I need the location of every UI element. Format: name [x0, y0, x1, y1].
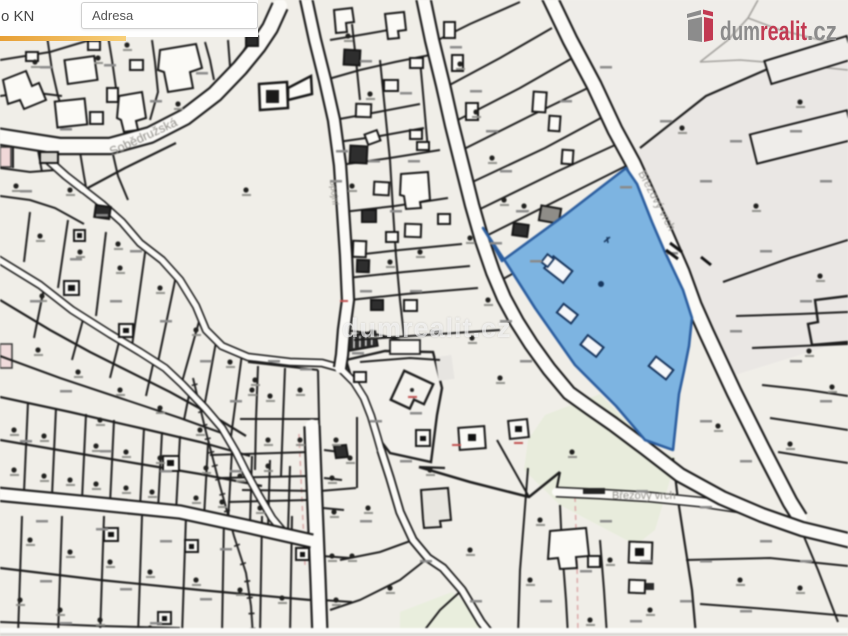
svg-text:Březový vrch: Březový vrch: [612, 490, 676, 502]
svg-text:.cz: .cz: [807, 16, 837, 46]
svg-text:realit: realit: [760, 16, 807, 46]
svg-text:dum: dum: [720, 16, 760, 46]
